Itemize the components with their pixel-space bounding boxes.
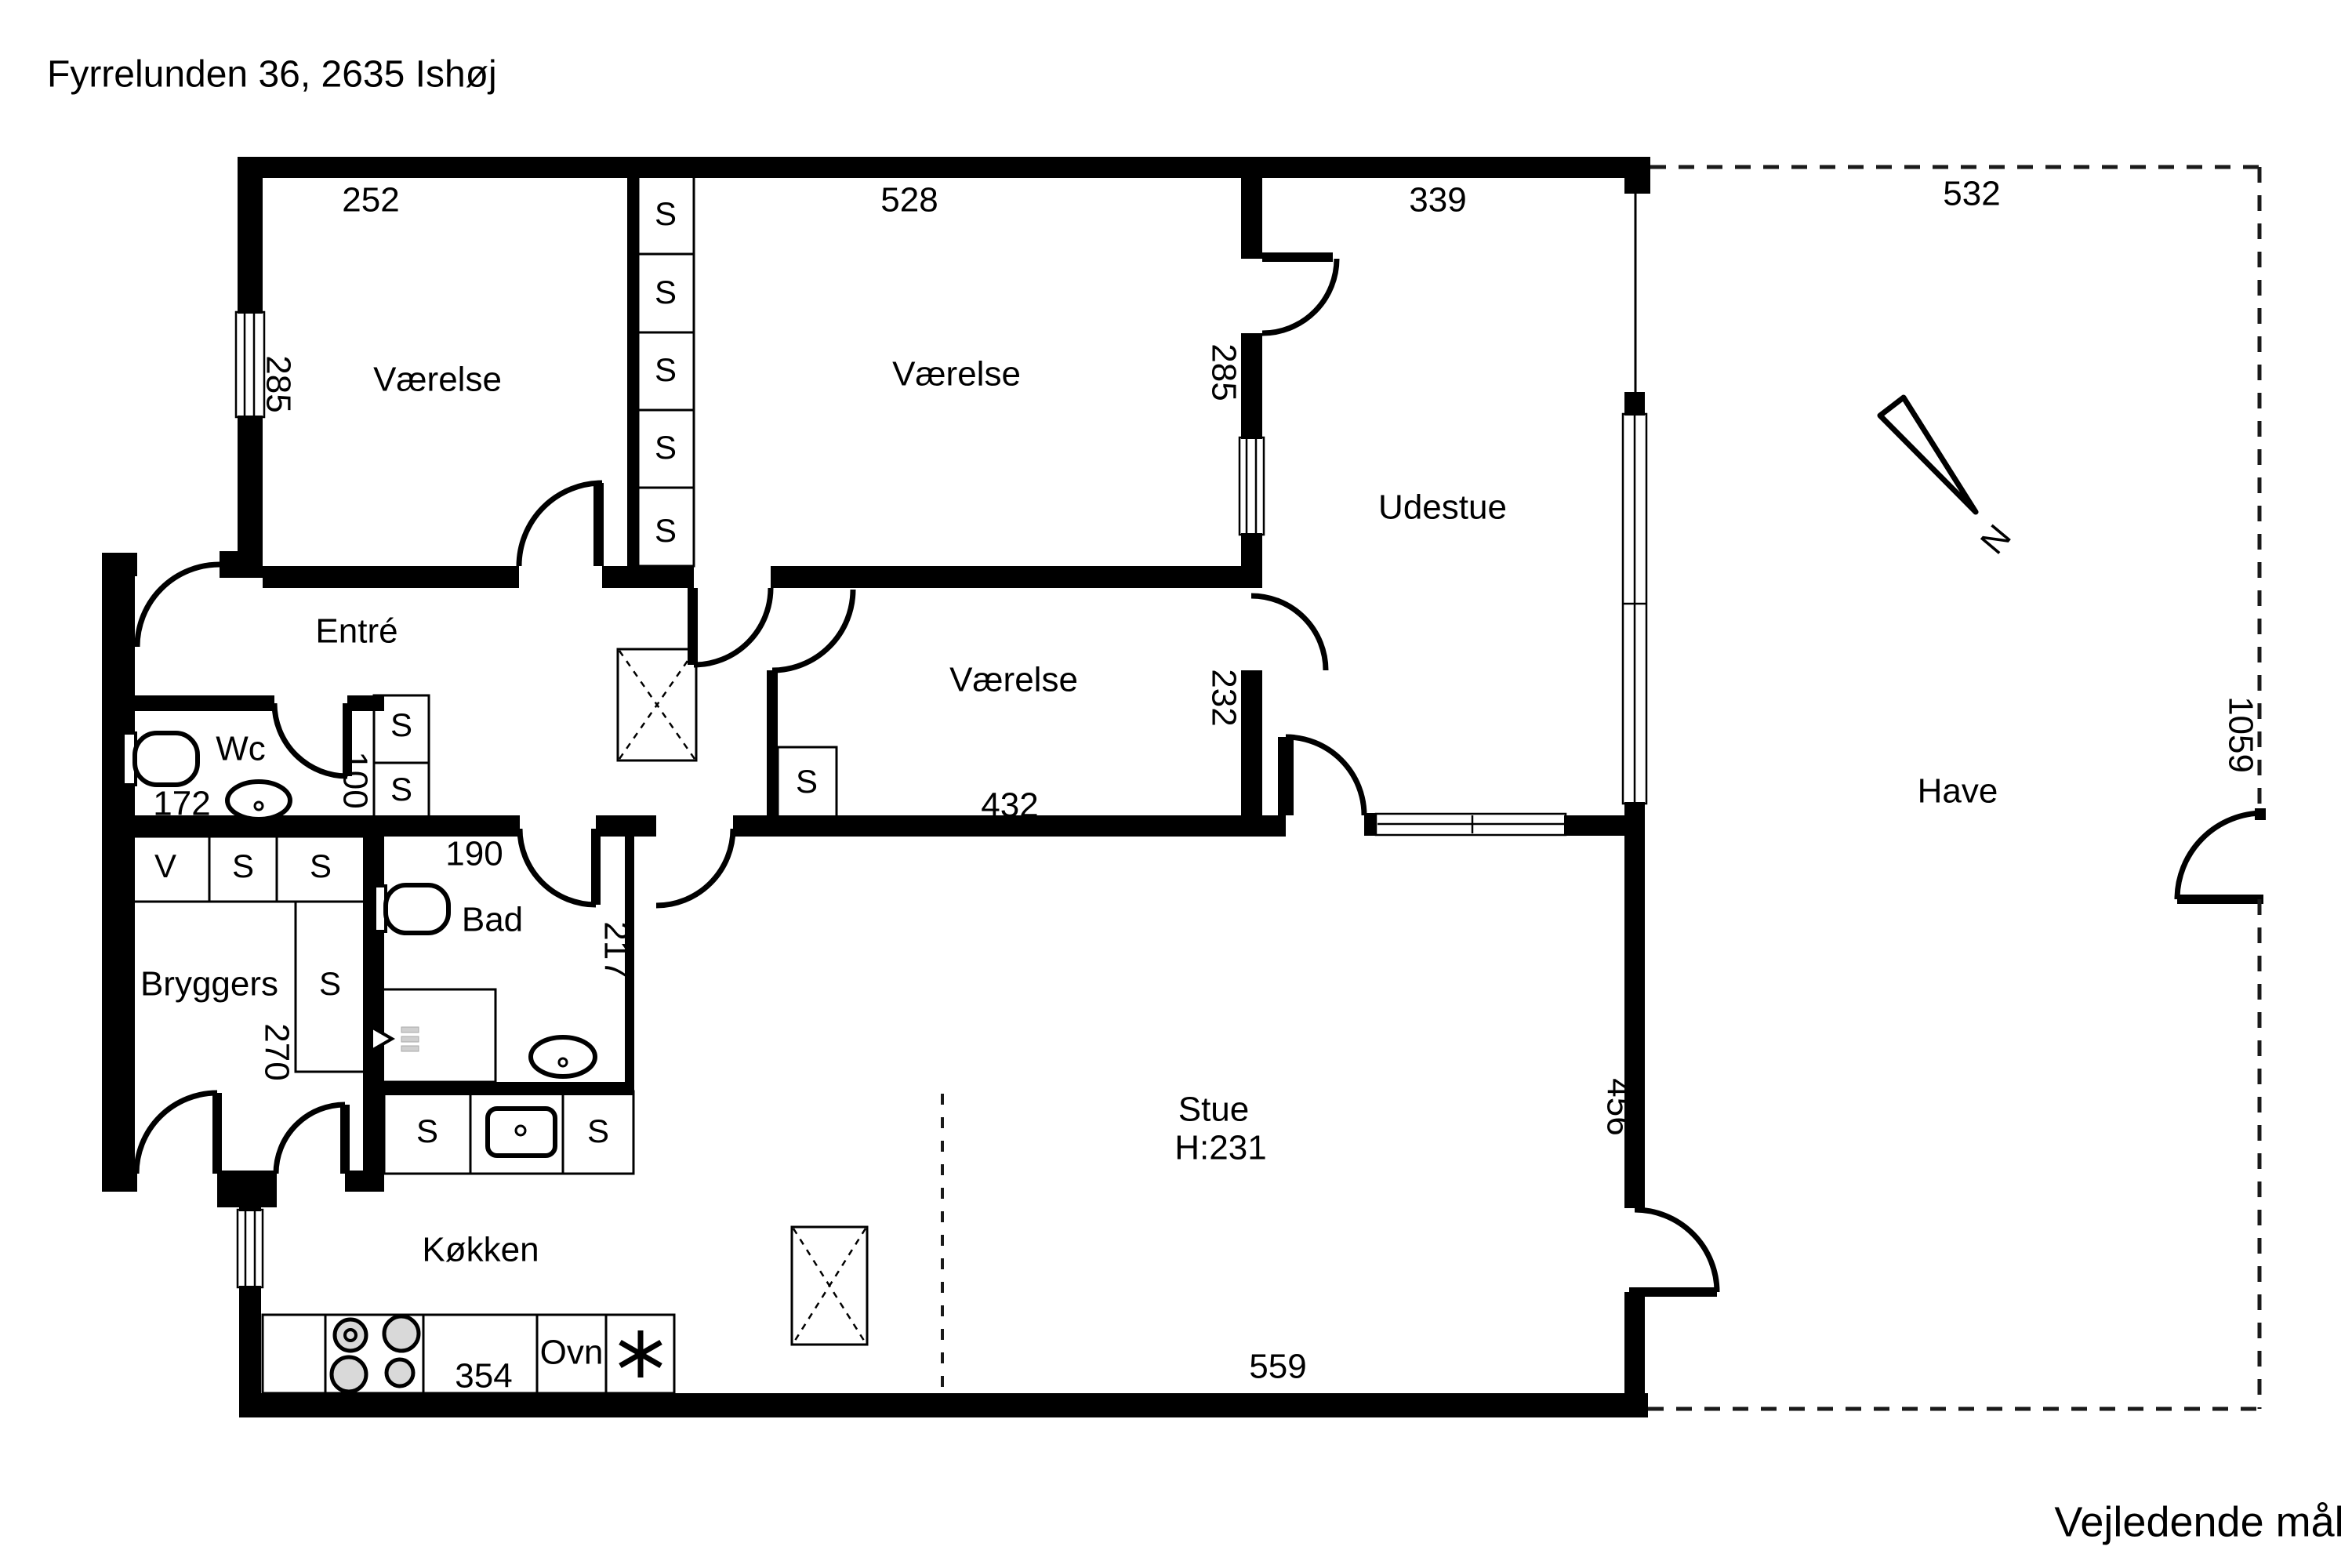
dim-270: 270	[257, 1023, 296, 1080]
wall-mid-udestue-b	[1241, 333, 1262, 439]
room-label-stue: Stue	[1178, 1091, 1250, 1129]
wall-top	[238, 157, 1650, 178]
kitchen-sink-icon	[488, 1109, 555, 1156]
wall-bryggers-south-w	[102, 1171, 137, 1192]
door-arc-have	[1635, 1210, 1717, 1292]
dim-252: 252	[342, 181, 399, 220]
wall-wc-north-b	[347, 695, 384, 711]
closet-letter: S	[390, 706, 412, 743]
wall-mid-udestue-c	[1241, 533, 1262, 588]
door-arc-room-mid-east	[1251, 596, 1326, 670]
floorplan-canvas: N Fyrrelunden 36, 2635 Ishøj Vejledende …	[0, 0, 2352, 1568]
dim-190: 190	[445, 835, 503, 873]
dim-285-right: 285	[1204, 343, 1243, 401]
footer-note: Vejledende mål	[2054, 1498, 2343, 1545]
wall-room-mid-west	[767, 670, 778, 819]
closet-letter: S	[416, 1112, 438, 1149]
floorplan-page: N Fyrrelunden 36, 2635 Ishøj Vejledende …	[0, 0, 2352, 1568]
wall-east-stue-upper	[1624, 833, 1645, 1208]
wall-room-mid-east	[1241, 670, 1262, 823]
page-title: Fyrrelunden 36, 2635 Ishøj	[47, 54, 497, 96]
wall-udestue-east-corner	[1624, 802, 1645, 833]
closet-letter: S	[655, 429, 677, 466]
window-udestue-east	[1623, 414, 1646, 804]
wall-mid-udestue-a	[1241, 176, 1262, 259]
door-arc-koekken	[656, 829, 733, 906]
closet-letter: S	[319, 965, 341, 1002]
closet-letter: S	[655, 274, 677, 310]
door-arc-udestue-top	[1262, 259, 1337, 333]
door-leaf-room-tl	[593, 483, 604, 566]
room-label-bad: Bad	[462, 901, 523, 939]
door-leaf-bryggers-ext	[212, 1093, 222, 1174]
room-label-bryggers: Bryggers	[140, 965, 278, 1004]
door-arc-room-mid-west	[772, 590, 853, 670]
room-label-vaerelse-tl: Værelse	[373, 361, 502, 399]
window-koekken-west	[238, 1210, 263, 1287]
door-arc-room-tl	[519, 483, 602, 566]
room-label-udestue: Udestue	[1378, 488, 1507, 527]
wall-kitchen-west-a	[239, 1192, 261, 1211]
room-label-vaerelse-mid: Værelse	[949, 661, 1078, 699]
wall-bryggers-south-e	[345, 1171, 384, 1192]
wall-entre-north-jamb	[102, 553, 137, 576]
wall-ne-corner	[1624, 157, 1650, 194]
toilet-icon-wc	[123, 733, 198, 785]
wall-stue-door-jamb	[1364, 813, 1375, 836]
dim-232: 232	[1204, 669, 1243, 726]
compass-north-label: N	[1973, 517, 2019, 561]
wall-east-stue-lower	[1624, 1292, 1645, 1417]
wall-corridor-south-b	[596, 815, 656, 837]
dim-532: 532	[1943, 175, 2000, 213]
washer-letter: V	[154, 848, 176, 884]
door-arc-front	[137, 564, 220, 647]
door-arc-room-top	[694, 588, 771, 665]
room-label-entre: Entré	[315, 612, 397, 651]
wall-udestue-south-e	[1564, 815, 1624, 836]
closet-letter: S	[232, 848, 254, 884]
wall-west-corner	[220, 551, 263, 578]
wall-wc-north-a	[120, 695, 274, 711]
dim-339: 339	[1409, 181, 1466, 220]
wall-bottom	[239, 1393, 1648, 1417]
closet-letter: S	[390, 771, 412, 808]
door-leaf-udestue-top	[1262, 252, 1333, 262]
sink-icon-bad	[531, 1037, 595, 1076]
room-label-wc: Wc	[216, 730, 266, 768]
dim-217: 217	[597, 921, 635, 978]
closet-letter: S	[655, 351, 677, 388]
closet-letter: S	[655, 195, 677, 232]
room-label-stue-height: H:231	[1174, 1129, 1266, 1167]
duct-box-entre	[618, 649, 696, 760]
fixtures: N	[123, 397, 2019, 1392]
room-label-koekken: Køkken	[422, 1231, 539, 1269]
dim-432: 432	[981, 786, 1038, 825]
compass-icon: N	[1880, 397, 2019, 561]
door-arc-bad	[520, 829, 596, 905]
wall-closet-column	[627, 176, 638, 566]
wall-bad-south	[363, 1082, 634, 1095]
wall-hall-row-a	[263, 566, 519, 588]
wall-west-upper-b	[238, 416, 263, 553]
freezer-icon	[620, 1330, 661, 1377]
dim-100: 100	[336, 751, 374, 808]
window-udestue-south	[1376, 814, 1566, 835]
door-arc-stue	[1286, 737, 1364, 815]
wall-udestue-east-block	[1624, 392, 1645, 416]
toilet-icon-bad	[375, 885, 448, 933]
closet-letter: S	[655, 512, 677, 549]
dim-456: 456	[1599, 1078, 1638, 1135]
shower-zone	[376, 989, 495, 1082]
wall-west-upper-a	[238, 178, 263, 314]
door-leaf-bad	[591, 829, 601, 905]
stove-icon	[332, 1316, 419, 1392]
room-label-have: Have	[1918, 772, 1998, 811]
dim-172: 172	[153, 785, 210, 823]
wall-hall-row-c	[771, 566, 1241, 588]
closets	[122, 176, 837, 1393]
exterior-walls	[102, 157, 1650, 1417]
dim-528: 528	[880, 181, 938, 220]
room-label-vaerelse-top: Værelse	[892, 355, 1021, 394]
dim-285-left: 285	[259, 355, 297, 412]
door-leaf-bryggers-koekken	[340, 1105, 350, 1174]
shower-icon	[366, 1027, 419, 1051]
closet-letter: S	[796, 763, 818, 800]
dim-354: 354	[455, 1357, 512, 1396]
door-arc-gate	[2177, 813, 2263, 899]
wall-west-mid	[102, 576, 135, 1171]
dim-1059: 1059	[2221, 696, 2259, 773]
wall-hall-row-b	[602, 566, 694, 588]
door-arc-bryggers-ext	[136, 1093, 217, 1174]
door-leaf-stue	[1278, 737, 1294, 815]
door-leaf-have	[1629, 1287, 1717, 1297]
duct-box-koekken	[792, 1227, 867, 1345]
door-leaf-gate	[2177, 895, 2263, 904]
closet-letter: S	[587, 1112, 609, 1149]
oven-label: Ovn	[540, 1334, 604, 1372]
dim-559: 559	[1249, 1348, 1306, 1386]
sink-icon-wc	[227, 782, 290, 819]
door-arc-bryggers-koekken	[276, 1105, 345, 1174]
closet-letter: S	[310, 848, 332, 884]
window-room-top-east	[1240, 437, 1264, 535]
